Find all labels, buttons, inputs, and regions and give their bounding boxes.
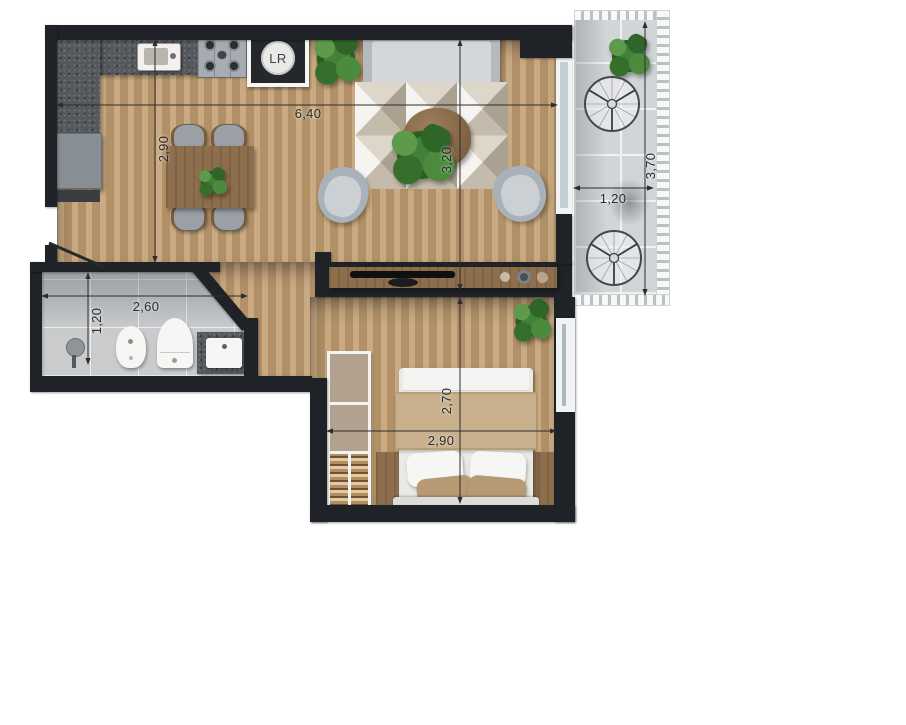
dim-kitchen-depth: 2,90 [156,129,172,169]
vanity-basin [206,338,242,368]
balcony-door-glass [560,62,568,208]
closet-section-middle [330,405,368,451]
closet [327,351,371,509]
toilet-tank-line [160,352,190,353]
shelf-decor-cup [500,272,510,282]
dim-bathroom-depth: 1,20 [89,301,105,341]
floor-plan: LR [0,0,906,725]
armchair-right-seat [497,171,544,220]
dining-table-plant [194,166,230,198]
dim-bedroom-depth: 2,70 [439,381,455,421]
armchair-left-seat [320,172,365,220]
bidet [116,326,146,368]
wall-top [45,25,572,40]
bed-blanket [396,392,536,450]
vanity-faucet [222,344,227,349]
tv [350,271,455,278]
kitchen-sink [137,43,181,71]
wall-top-right-block [520,25,572,58]
shelf-decor-object [537,272,548,283]
closet-section-top [330,354,368,402]
washer-label: LR [269,51,287,66]
wall-left-upper [45,25,57,207]
bathroom-wall-right [244,318,258,380]
toilet [157,318,193,368]
wire-chair-top [581,74,643,134]
bidet-detail [129,356,133,360]
closet-shelves-left [330,454,348,506]
bed-sheet-fold [403,368,529,391]
shower-stem [72,355,76,368]
wire-chair-bottom [583,226,645,290]
sofa-seat [372,41,491,88]
washer-drum: LR [261,41,295,75]
sink-basin [144,48,168,65]
toilet-button [172,358,177,363]
closet-shelves-right [351,454,368,506]
tv-stand [388,278,418,287]
balcony-railing-bottom [574,294,670,306]
bathroom-vanity [197,332,249,374]
sink-faucet [170,53,176,59]
wall-right-living [556,214,572,264]
dim-living-width: 6,40 [288,106,328,122]
balcony-plant [602,32,654,80]
bidet-drain [128,339,133,344]
kitchen-counter-left [57,38,100,133]
dim-bathroom-width: 2,60 [126,299,166,315]
bedroom-plant [508,296,554,346]
shelf-decor-bowl [517,270,531,284]
bedroom-wall-left [310,378,327,522]
bedroom-wall-bottom [310,505,575,522]
fridge [55,133,102,189]
dim-living-depth: 3,20 [439,140,455,180]
bathroom-wall-left [30,262,42,390]
fridge-shelf [55,190,100,202]
dim-balcony-depth: 3,70 [643,146,659,186]
bedroom-window-glass [562,324,566,406]
dim-bedroom-width: 2,90 [421,433,461,449]
bathroom-wall-bottom [30,376,312,392]
dim-balcony-width: 1,20 [593,191,633,207]
